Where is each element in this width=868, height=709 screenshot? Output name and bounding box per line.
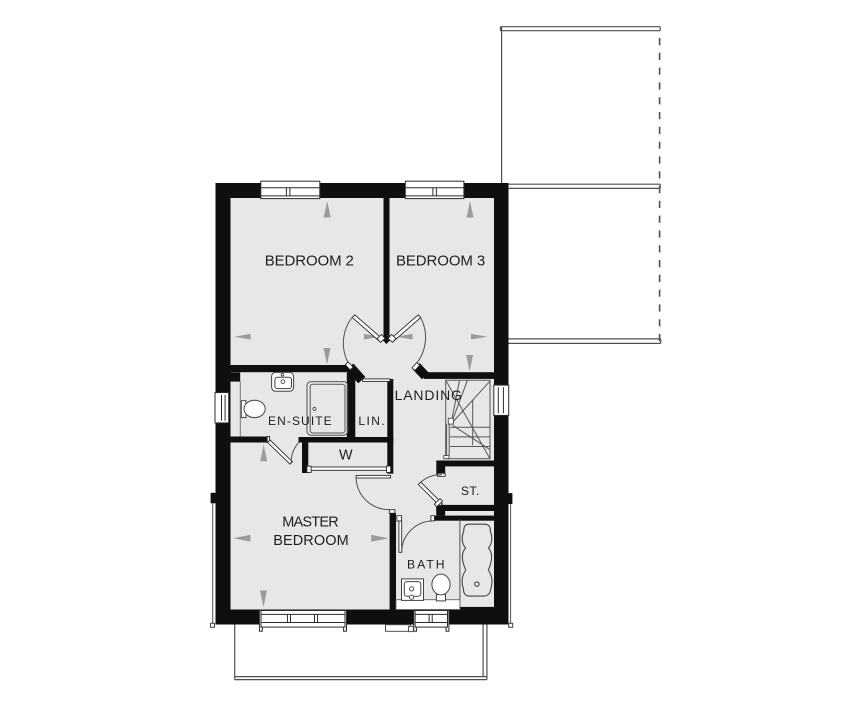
svg-text:W: W [339, 448, 353, 464]
svg-text:BATH: BATH [407, 558, 447, 572]
svg-text:BEDROOM 2: BEDROOM 2 [265, 252, 354, 269]
svg-text:BEDROOM: BEDROOM [273, 533, 349, 549]
svg-text:LIN.: LIN. [358, 414, 386, 428]
svg-text:ST.: ST. [461, 484, 480, 498]
svg-text:EN-SUITE: EN-SUITE [268, 414, 333, 428]
svg-text:LANDING: LANDING [395, 387, 463, 403]
svg-text:MASTER: MASTER [282, 515, 338, 531]
svg-text:BEDROOM 3: BEDROOM 3 [396, 252, 485, 269]
